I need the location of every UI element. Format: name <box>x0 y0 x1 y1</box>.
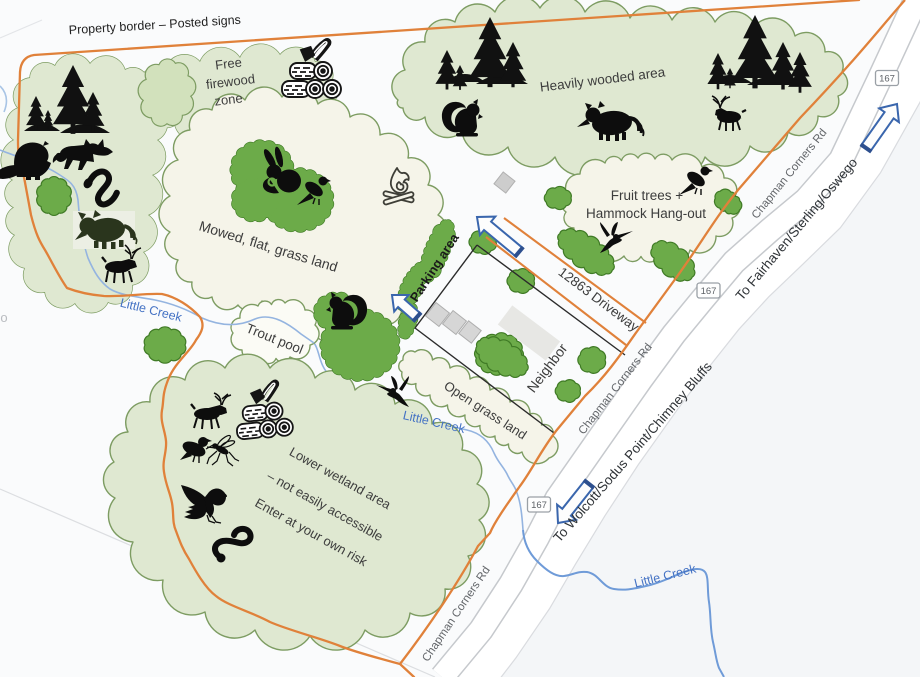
svg-text:167: 167 <box>879 74 895 85</box>
svg-text:167: 167 <box>701 286 717 297</box>
svg-text:o: o <box>0 310 7 325</box>
svg-text:Fruit trees +: Fruit trees + <box>611 188 684 203</box>
svg-text:Hammock Hang-out: Hammock Hang-out <box>586 206 706 221</box>
svg-text:167: 167 <box>531 500 547 511</box>
